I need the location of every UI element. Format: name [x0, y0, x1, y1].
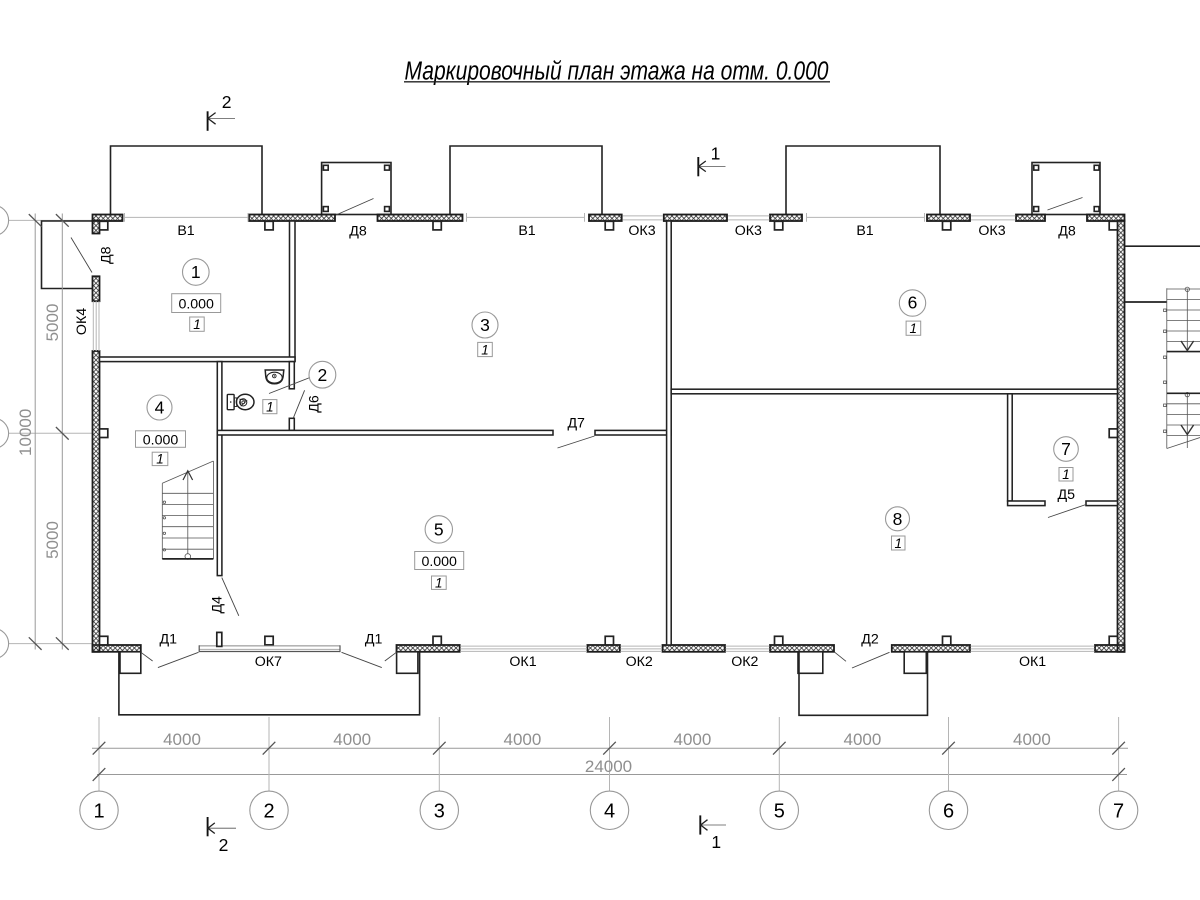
svg-text:10000: 10000	[16, 409, 35, 456]
svg-text:ОК3: ОК3	[628, 223, 655, 239]
svg-text:ОК7: ОК7	[255, 654, 282, 670]
svg-text:1: 1	[1062, 467, 1070, 482]
svg-text:1: 1	[266, 399, 274, 414]
svg-text:ОК1: ОК1	[509, 654, 536, 670]
svg-text:ОК1: ОК1	[1019, 654, 1046, 670]
svg-text:Д2: Д2	[861, 632, 879, 648]
svg-text:7: 7	[1061, 439, 1071, 459]
svg-text:ОК3: ОК3	[735, 223, 762, 239]
svg-text:4000: 4000	[843, 730, 881, 749]
svg-text:1: 1	[711, 144, 721, 164]
svg-text:2: 2	[318, 365, 328, 385]
svg-text:Д5: Д5	[1058, 487, 1076, 503]
svg-text:Д4: Д4	[210, 596, 226, 614]
svg-text:8: 8	[893, 509, 903, 529]
svg-text:3: 3	[434, 800, 445, 822]
svg-text:1: 1	[909, 321, 917, 336]
svg-text:7: 7	[1113, 800, 1124, 822]
svg-text:Д1: Д1	[365, 631, 383, 647]
svg-text:5000: 5000	[43, 521, 62, 559]
svg-text:0.000: 0.000	[421, 554, 457, 570]
svg-text:6: 6	[908, 293, 918, 313]
svg-text:В1: В1	[856, 223, 873, 239]
svg-text:1: 1	[156, 452, 164, 467]
svg-text:2: 2	[263, 800, 274, 822]
svg-text:1: 1	[481, 342, 489, 357]
svg-text:4000: 4000	[333, 730, 371, 749]
svg-text:ОК3: ОК3	[978, 223, 1005, 239]
svg-text:1: 1	[191, 262, 201, 282]
svg-text:2: 2	[219, 835, 229, 855]
svg-text:4000: 4000	[673, 730, 711, 749]
svg-text:В1: В1	[177, 223, 194, 239]
svg-text:0.000: 0.000	[143, 432, 179, 448]
svg-text:ОК2: ОК2	[626, 654, 653, 670]
svg-text:1: 1	[435, 575, 443, 590]
svg-text:1: 1	[93, 800, 104, 822]
svg-text:В1: В1	[518, 223, 535, 239]
svg-text:Д7: Д7	[567, 415, 585, 431]
svg-text:0.000: 0.000	[178, 296, 214, 312]
svg-text:2: 2	[222, 92, 232, 112]
svg-text:ОК2: ОК2	[731, 654, 758, 670]
svg-text:Д8: Д8	[1058, 224, 1076, 240]
svg-text:5: 5	[774, 800, 785, 822]
svg-text:24000: 24000	[585, 757, 632, 776]
svg-text:ОК4: ОК4	[74, 308, 90, 335]
svg-text:4000: 4000	[163, 730, 201, 749]
svg-text:1: 1	[711, 832, 721, 852]
svg-text:5: 5	[434, 520, 444, 540]
svg-text:6: 6	[943, 800, 954, 822]
svg-text:Д8: Д8	[349, 224, 367, 240]
svg-text:Д8: Д8	[99, 246, 115, 264]
svg-text:5000: 5000	[43, 304, 62, 342]
svg-text:4000: 4000	[503, 730, 541, 749]
svg-text:4000: 4000	[1013, 730, 1051, 749]
svg-text:Д6: Д6	[306, 395, 322, 413]
svg-text:1: 1	[193, 317, 201, 332]
svg-text:1: 1	[894, 536, 902, 551]
svg-text:4: 4	[155, 398, 165, 418]
svg-text:Д1: Д1	[160, 631, 178, 647]
svg-text:4: 4	[604, 800, 615, 822]
svg-text:3: 3	[480, 315, 490, 335]
